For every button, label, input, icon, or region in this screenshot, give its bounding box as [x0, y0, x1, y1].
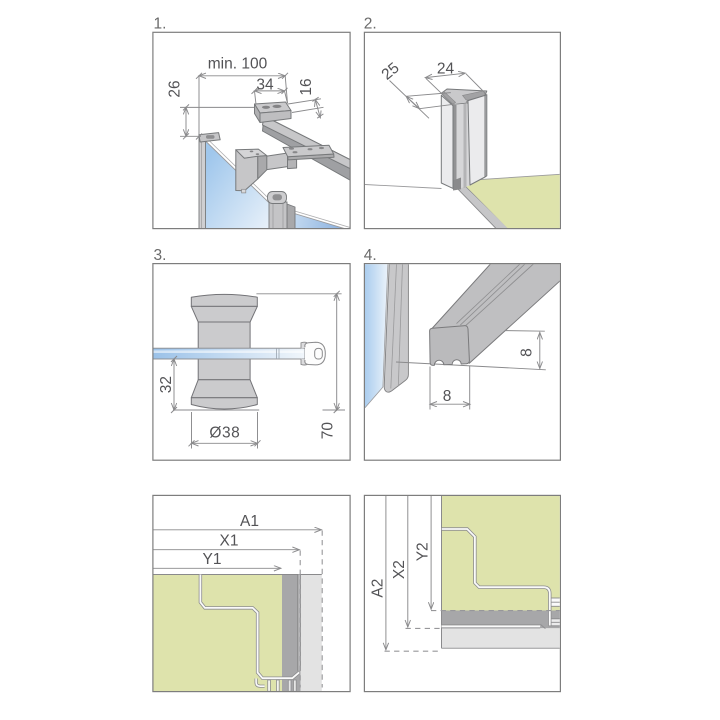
- svg-text:24: 24: [437, 60, 455, 77]
- svg-text:26: 26: [166, 80, 183, 97]
- svg-text:Y1: Y1: [203, 551, 222, 568]
- svg-text:1.: 1.: [154, 16, 167, 33]
- svg-text:Ø38: Ø38: [209, 425, 240, 442]
- svg-text:Y2: Y2: [415, 542, 432, 561]
- svg-text:70: 70: [320, 422, 337, 440]
- svg-text:8: 8: [443, 388, 452, 405]
- svg-text:X1: X1: [220, 533, 239, 550]
- svg-text:A2: A2: [369, 579, 386, 598]
- svg-text:16: 16: [298, 78, 315, 95]
- svg-text:min. 100: min. 100: [208, 55, 268, 72]
- svg-text:32: 32: [158, 376, 175, 393]
- svg-text:34: 34: [256, 76, 274, 93]
- svg-text:A1: A1: [240, 513, 259, 530]
- svg-text:3.: 3.: [154, 247, 167, 264]
- svg-text:X2: X2: [391, 560, 408, 579]
- svg-text:8: 8: [518, 348, 535, 357]
- svg-text:4.: 4.: [364, 247, 377, 264]
- svg-text:25: 25: [379, 59, 403, 83]
- svg-text:2.: 2.: [364, 16, 377, 33]
